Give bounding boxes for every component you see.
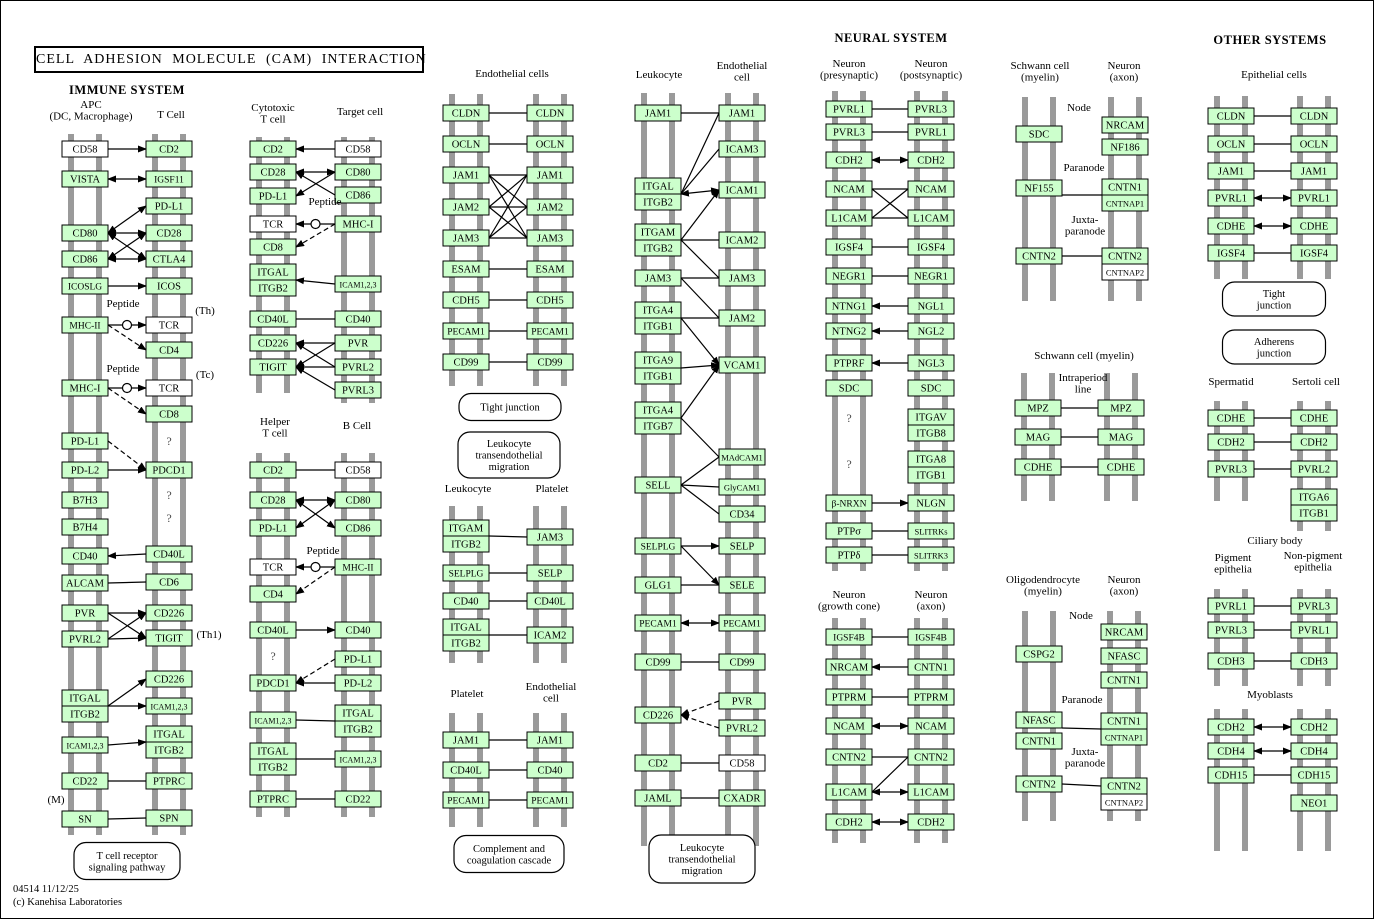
gene-box-PVRL3[interactable]: PVRL3 — [826, 124, 872, 140]
gene-box-CLDN[interactable]: CLDN — [443, 105, 489, 121]
gene-box-CDH4[interactable]: CDH4 — [1291, 743, 1337, 759]
svg-text:ICAM2: ICAM2 — [534, 631, 567, 642]
gene-box-CD22[interactable]: CD22 — [335, 791, 381, 807]
gene-box-MPZ[interactable]: MPZ — [1015, 400, 1061, 416]
gene-box-JAM1[interactable]: JAM1 — [635, 105, 681, 121]
gene-box-PD-L1[interactable]: PD-L1 — [146, 198, 192, 214]
gene-box-JAM1[interactable]: JAM1 — [443, 732, 489, 748]
gene-box-CDH3[interactable]: CDH3 — [1291, 653, 1337, 669]
edge — [681, 701, 719, 715]
gene-box-CDH15[interactable]: CDH15 — [1208, 767, 1254, 783]
gene-box-ITGA4[interactable]: ITGA4 — [635, 402, 681, 418]
gene-box-CNTN2[interactable]: CNTN2 — [1102, 248, 1148, 264]
gene-box-ICAM1,2,3[interactable]: ICAM1,2,3 — [146, 698, 192, 714]
svg-text:CD226: CD226 — [258, 339, 288, 350]
gene-box-CNTN2[interactable]: CNTN2 — [1101, 778, 1147, 794]
gene-box-CD2[interactable]: CD2 — [250, 141, 296, 157]
cell-label: Paranode — [1062, 694, 1103, 706]
gene-box-PVRL1[interactable]: PVRL1 — [1291, 622, 1337, 638]
gene-box-ITGAL[interactable]: ITGAL — [635, 178, 681, 194]
gene-box-ICAM1,2,3[interactable]: ICAM1,2,3 — [335, 276, 381, 292]
gene-box-ITGAM[interactable]: ITGAM — [443, 520, 489, 536]
svg-text:JAML: JAML — [644, 794, 671, 805]
gene-box-PDCD1[interactable]: PDCD1 — [250, 675, 296, 691]
gene-box-CD40[interactable]: CD40 — [335, 311, 381, 327]
gene-box-PD-L1[interactable]: PD-L1 — [250, 520, 296, 536]
gene-box-CD58[interactable]: CD58 — [62, 141, 108, 157]
gene-box-SELP[interactable]: SELP — [719, 538, 765, 554]
gene-box-CDH2[interactable]: CDH2 — [826, 814, 872, 830]
gene-box-NF186[interactable]: NF186 — [1102, 139, 1148, 155]
gene-box-PTPRM[interactable]: PTPRM — [908, 689, 954, 705]
gene-box-MAdCAM1[interactable]: MAdCAM1 — [719, 449, 765, 465]
svg-text:PVRL3: PVRL3 — [342, 386, 374, 397]
gene-box-CD80[interactable]: CD80 — [62, 225, 108, 241]
gene-box-ITGB2[interactable]: ITGB2 — [146, 742, 192, 758]
gene-box-ITGB2[interactable]: ITGB2 — [250, 759, 296, 775]
gene-box-SDC[interactable]: SDC — [826, 380, 872, 396]
gene-box-CD40L[interactable]: CD40L — [146, 546, 192, 562]
gene-box-SLITRK3[interactable]: SLITRK3 — [908, 547, 954, 563]
gene-box-JAM1[interactable]: JAM1 — [527, 732, 573, 748]
gene-box-CNTN1[interactable]: CNTN1 — [1101, 672, 1147, 688]
gene-box-JAM2[interactable]: JAM2 — [719, 310, 765, 326]
gene-box-NEGR1[interactable]: NEGR1 — [908, 268, 954, 284]
gene-box-CD28[interactable]: CD28 — [146, 225, 192, 241]
svg-text:CNTN2: CNTN2 — [832, 753, 866, 764]
gene-box-MAG[interactable]: MAG — [1015, 429, 1061, 445]
gene-box-JAM2[interactable]: JAM2 — [527, 199, 573, 215]
gene-box-NEGR1[interactable]: NEGR1 — [826, 268, 872, 284]
gene-box-PECAM1[interactable]: PECAM1 — [443, 792, 489, 808]
gene-box-CD99[interactable]: CD99 — [719, 654, 765, 670]
gene-box-ITGB2[interactable]: ITGB2 — [635, 194, 681, 210]
gene-box-PTPRM[interactable]: PTPRM — [826, 689, 872, 705]
gene-box-CD58[interactable]: CD58 — [335, 462, 381, 478]
gene-box-CD40L[interactable]: CD40L — [443, 762, 489, 778]
gene-box-PVRL2[interactable]: PVRL2 — [335, 359, 381, 375]
gene-box-SPN[interactable]: SPN — [146, 810, 192, 826]
gene-box-CDHE[interactable]: CDHE — [1208, 218, 1254, 234]
gene-box-PECAM1[interactable]: PECAM1 — [635, 615, 681, 631]
gene-box-CD2[interactable]: CD2 — [250, 462, 296, 478]
gene-box-PVRL3[interactable]: PVRL3 — [1208, 461, 1254, 477]
gene-box-ITGB1[interactable]: ITGB1 — [908, 467, 954, 483]
gene-box-ICOSLG[interactable]: ICOSLG — [62, 278, 108, 294]
gene-box-CD8[interactable]: CD8 — [250, 239, 296, 255]
gene-box-CNTN2[interactable]: CNTN2 — [1016, 776, 1062, 792]
gene-box-JAM3[interactable]: JAM3 — [443, 230, 489, 246]
gene-box-CNTN1[interactable]: CNTN1 — [1102, 179, 1148, 195]
gene-box-NGL3[interactable]: NGL3 — [908, 355, 954, 371]
gene-box-NFASC[interactable]: NFASC — [1016, 712, 1062, 728]
gene-box-CD4[interactable]: CD4 — [146, 342, 192, 358]
gene-box-PDCD1[interactable]: PDCD1 — [146, 462, 192, 478]
gene-box-ITGB1[interactable]: ITGB1 — [635, 368, 681, 384]
gene-box-JAM3[interactable]: JAM3 — [719, 270, 765, 286]
gene-box-PVRL2[interactable]: PVRL2 — [719, 720, 765, 736]
gene-box-ITGAL[interactable]: ITGAL — [62, 690, 108, 706]
gene-box-OCLN[interactable]: OCLN — [527, 136, 573, 152]
cell-label: Schwann cell — [1011, 60, 1070, 72]
gene-box-CXADR[interactable]: CXADR — [719, 790, 765, 806]
gene-box-CD80[interactable]: CD80 — [335, 492, 381, 508]
gene-box-MHC-II[interactable]: MHC-II — [335, 559, 381, 575]
pathway-link-leukocyte-transendothelial-migration[interactable]: Leukocytetransendothelialmigration — [649, 835, 755, 883]
gene-box-SLITRKs[interactable]: SLITRKs — [908, 523, 954, 539]
gene-box-ICAM3[interactable]: ICAM3 — [719, 141, 765, 157]
gene-box-NRCAM[interactable]: NRCAM — [826, 659, 872, 675]
gene-box-JAML[interactable]: JAML — [635, 790, 681, 806]
svg-text:CDH2: CDH2 — [917, 818, 944, 829]
gene-box-CDHE[interactable]: CDHE — [1098, 459, 1144, 475]
gene-box-PECAM1[interactable]: PECAM1 — [527, 792, 573, 808]
gene-box-MAG[interactable]: MAG — [1098, 429, 1144, 445]
gene-box-ITGAL[interactable]: ITGAL — [146, 726, 192, 742]
gene-box-ITGB2[interactable]: ITGB2 — [443, 536, 489, 552]
gene-box-TIGIT[interactable]: TIGIT — [250, 359, 296, 375]
gene-box-SELE[interactable]: SELE — [719, 577, 765, 593]
gene-box-CDH5[interactable]: CDH5 — [443, 292, 489, 308]
gene-box-ITGB2[interactable]: ITGB2 — [335, 721, 381, 737]
gene-box-SDC[interactable]: SDC — [1016, 126, 1062, 142]
gene-box-PECAM1[interactable]: PECAM1 — [443, 323, 489, 339]
gene-box-CDHE[interactable]: CDHE — [1291, 410, 1337, 426]
gene-box-VCAM1[interactable]: VCAM1 — [719, 357, 765, 373]
gene-box-CDHE[interactable]: CDHE — [1015, 459, 1061, 475]
gene-box-SELPLG[interactable]: SELPLG — [635, 538, 681, 554]
gene-box-CNTNAP2[interactable]: CNTNAP2 — [1102, 264, 1148, 280]
gene-box-ICAM2[interactable]: ICAM2 — [527, 627, 573, 643]
gene-box-CD58[interactable]: CD58 — [335, 141, 381, 157]
gene-box-CD99[interactable]: CD99 — [635, 654, 681, 670]
gene-box-NCAM[interactable]: NCAM — [826, 181, 872, 197]
gene-box-IGSF4B[interactable]: IGSF4B — [908, 629, 954, 645]
cell-label: (DC, Macrophage) — [49, 111, 132, 123]
gene-box-ITGB1[interactable]: ITGB1 — [1291, 505, 1337, 521]
gene-box-CD2[interactable]: CD2 — [635, 755, 681, 771]
gene-box-NFASC[interactable]: NFASC — [1101, 648, 1147, 664]
gene-box-ITGAL[interactable]: ITGAL — [250, 264, 296, 280]
gene-box-PVR[interactable]: PVR — [335, 335, 381, 351]
gene-box-PTPRC[interactable]: PTPRC — [250, 791, 296, 807]
gene-box-CDH3[interactable]: CDH3 — [1208, 653, 1254, 669]
gene-box-ITGA4[interactable]: ITGA4 — [635, 302, 681, 318]
gene-box-CD40[interactable]: CD40 — [527, 762, 573, 778]
gene-box-CD40[interactable]: CD40 — [62, 548, 108, 564]
gene-box-IGSF4[interactable]: IGSF4 — [1291, 245, 1337, 261]
gene-box-GlyCAM1[interactable]: GlyCAM1 — [719, 479, 765, 495]
svg-text:ITGAL: ITGAL — [450, 623, 482, 634]
gene-box-TCR[interactable]: TCR — [146, 380, 192, 396]
gene-box-MHC-I[interactable]: MHC-I — [335, 216, 381, 232]
svg-text:CDH3: CDH3 — [1217, 657, 1244, 668]
gene-box-CDH2[interactable]: CDH2 — [1291, 434, 1337, 450]
gene-box-NGL2[interactable]: NGL2 — [908, 323, 954, 339]
cell-label: Helper — [260, 416, 290, 428]
edge — [681, 546, 719, 585]
gene-box-PTPRF[interactable]: PTPRF — [826, 355, 872, 371]
gene-box-PECAM1[interactable]: PECAM1 — [719, 615, 765, 631]
gene-box-CD58[interactable]: CD58 — [719, 755, 765, 771]
gene-box-OCLN[interactable]: OCLN — [1208, 136, 1254, 152]
gene-box-CD40L[interactable]: CD40L — [527, 593, 573, 609]
gene-box-ESAM[interactable]: ESAM — [443, 261, 489, 277]
gene-box-PVRL1[interactable]: PVRL1 — [1291, 190, 1337, 206]
gene-box-PECAM1[interactable]: PECAM1 — [527, 323, 573, 339]
svg-text:ITGAL: ITGAL — [69, 694, 101, 705]
edge — [681, 278, 719, 318]
gene-box-NLGN[interactable]: NLGN — [908, 495, 954, 511]
gene-box-ITGAM[interactable]: ITGAM — [635, 224, 681, 240]
gene-box-JAM1[interactable]: JAM1 — [1208, 163, 1254, 179]
gene-box-PD-L1[interactable]: PD-L1 — [62, 433, 108, 449]
gene-box-L1CAM[interactable]: L1CAM — [908, 210, 954, 226]
gene-box-CD22[interactable]: CD22 — [62, 773, 108, 789]
gene-box-JAM3[interactable]: JAM3 — [527, 529, 573, 545]
gene-box-CDH2[interactable]: CDH2 — [1291, 719, 1337, 735]
gene-box-PVRL3[interactable]: PVRL3 — [1291, 598, 1337, 614]
gene-box-CNTN2[interactable]: CNTN2 — [1016, 248, 1062, 264]
pathway-link-leukocyte-transendothelial-migration[interactable]: Leukocytetransendothelialmigration — [458, 432, 560, 478]
gene-box-TCR[interactable]: TCR — [146, 317, 192, 333]
gene-box-IGSF4[interactable]: IGSF4 — [908, 239, 954, 255]
svg-text:ITGAL: ITGAL — [257, 268, 289, 279]
gene-box-CNTNAP1[interactable]: CNTNAP1 — [1102, 195, 1148, 211]
gene-box-L1CAM[interactable]: L1CAM — [826, 784, 872, 800]
gene-box-CD86[interactable]: CD86 — [335, 187, 381, 203]
gene-box-IGSF4[interactable]: IGSF4 — [826, 239, 872, 255]
pathway-link-complement-and-coagulation-cascade[interactable]: Complement andcoagulation cascade — [454, 836, 564, 873]
gene-box-CD34[interactable]: CD34 — [719, 506, 765, 522]
gene-box-MHC-II[interactable]: MHC-II — [62, 317, 108, 333]
gene-box-JAM1[interactable]: JAM1 — [1291, 163, 1337, 179]
svg-text:TCR: TCR — [159, 321, 179, 332]
edge — [108, 206, 146, 233]
gene-box-PVRL1[interactable]: PVRL1 — [1208, 190, 1254, 206]
gene-box-PVRL3[interactable]: PVRL3 — [1208, 622, 1254, 638]
gene-box-CD8[interactable]: CD8 — [146, 406, 192, 422]
gene-box-MPZ[interactable]: MPZ — [1098, 400, 1144, 416]
pathway-link-adherens-junction[interactable]: Adherensjunction — [1223, 330, 1326, 364]
gene-box-ITGB1[interactable]: ITGB1 — [635, 318, 681, 334]
gene-box-CD99[interactable]: CD99 — [527, 354, 573, 370]
gene-box-CD6[interactable]: CD6 — [146, 574, 192, 590]
gene-box-ICOS[interactable]: ICOS — [146, 278, 192, 294]
peptide-circle-icon — [123, 321, 132, 330]
gene-box-L1CAM[interactable]: L1CAM — [826, 210, 872, 226]
svg-text:TCR: TCR — [159, 384, 179, 395]
gene-box-CD99[interactable]: CD99 — [443, 354, 489, 370]
gene-box-ITGA8[interactable]: ITGA8 — [908, 451, 954, 467]
gene-box-CD2[interactable]: CD2 — [146, 141, 192, 157]
gene-box-IGSF4B[interactable]: IGSF4B — [826, 629, 872, 645]
gene-box-CD40L[interactable]: CD40L — [250, 311, 296, 327]
gene-box-ICAM1,2,3[interactable]: ICAM1,2,3 — [335, 751, 381, 767]
pathway-link-t-cell-receptor-signaling-pathway[interactable]: T cell receptorsignaling pathway — [74, 843, 180, 880]
peptide-circle-icon — [311, 220, 320, 229]
gene-box-CDH2[interactable]: CDH2 — [908, 814, 954, 830]
gene-box-CLDN[interactable]: CLDN — [1291, 108, 1337, 124]
gene-box-PVRL2[interactable]: PVRL2 — [62, 631, 108, 647]
gene-box-CDHE[interactable]: CDHE — [1291, 218, 1337, 234]
gene-box-TCR[interactable]: TCR — [250, 216, 296, 232]
gene-box-CD226[interactable]: CD226 — [146, 605, 192, 621]
cell-label: Schwann cell (myelin) — [1034, 350, 1134, 362]
gene-box-VISTA[interactable]: VISTA — [62, 171, 108, 187]
gene-box-CDH2[interactable]: CDH2 — [1208, 434, 1254, 450]
gene-box-ICAM2[interactable]: ICAM2 — [719, 232, 765, 248]
gene-box-JAM3[interactable]: JAM3 — [527, 230, 573, 246]
gene-box-PD-L2[interactable]: PD-L2 — [62, 462, 108, 478]
gene-box-β-NRXN[interactable]: β-NRXN — [826, 495, 872, 511]
gene-box-JAM1[interactable]: JAM1 — [443, 167, 489, 183]
gene-box-CD28[interactable]: CD28 — [250, 492, 296, 508]
gene-box-PVRL2[interactable]: PVRL2 — [1291, 461, 1337, 477]
gene-box-CDH2[interactable]: CDH2 — [908, 152, 954, 168]
gene-box-CD40[interactable]: CD40 — [443, 593, 489, 609]
gene-box-ITGB7[interactable]: ITGB7 — [635, 418, 681, 434]
gene-box-ITGB2[interactable]: ITGB2 — [250, 280, 296, 296]
gene-box-B7H4[interactable]: B7H4 — [62, 519, 108, 535]
gene-box-PVR[interactable]: PVR — [62, 605, 108, 621]
gene-box-ITGB8[interactable]: ITGB8 — [908, 425, 954, 441]
gene-box-OCLN[interactable]: OCLN — [1291, 136, 1337, 152]
gene-box-ICAM1[interactable]: ICAM1 — [719, 182, 765, 198]
gene-box-NRCAM[interactable]: NRCAM — [1102, 117, 1148, 133]
gene-box-JAM2[interactable]: JAM2 — [443, 199, 489, 215]
gene-box-PVRL1[interactable]: PVRL1 — [1208, 598, 1254, 614]
gene-box-JAM1[interactable]: JAM1 — [719, 105, 765, 121]
gene-box-ITGAL[interactable]: ITGAL — [335, 705, 381, 721]
gene-box-ITGB2[interactable]: ITGB2 — [635, 240, 681, 256]
gene-box-CD226[interactable]: CD226 — [635, 707, 681, 723]
gene-box-CSPG2[interactable]: CSPG2 — [1016, 646, 1062, 662]
gene-box-CDH2[interactable]: CDH2 — [826, 152, 872, 168]
gene-box-PVR[interactable]: PVR — [719, 693, 765, 709]
gene-box-CNTN2[interactable]: CNTN2 — [908, 749, 954, 765]
gene-box-CD86[interactable]: CD86 — [62, 251, 108, 267]
gene-box-CNTN1[interactable]: CNTN1 — [1101, 713, 1147, 729]
gene-box-MHC-I[interactable]: MHC-I — [62, 380, 108, 396]
gene-box-SELP[interactable]: SELP — [527, 565, 573, 581]
gene-box-CDH2[interactable]: CDH2 — [1208, 719, 1254, 735]
gene-box-ITGAL[interactable]: ITGAL — [443, 619, 489, 635]
gene-box-CDHE[interactable]: CDHE — [1208, 410, 1254, 426]
gene-box-CD80[interactable]: CD80 — [335, 164, 381, 180]
gene-box-PD-L1[interactable]: PD-L1 — [335, 651, 381, 667]
gene-box-PD-L2[interactable]: PD-L2 — [335, 675, 381, 691]
gene-box-CLDN[interactable]: CLDN — [527, 105, 573, 121]
gene-box-ITGA9[interactable]: ITGA9 — [635, 352, 681, 368]
gene-box-ITGAL[interactable]: ITGAL — [250, 743, 296, 759]
gene-box-ITGAV[interactable]: ITGAV — [908, 409, 954, 425]
edge — [1062, 784, 1101, 786]
gene-box-ESAM[interactable]: ESAM — [527, 261, 573, 277]
gene-box-IGSF11[interactable]: IGSF11 — [146, 171, 192, 187]
gene-box-NF155[interactable]: NF155 — [1016, 180, 1062, 196]
gene-box-CD226[interactable]: CD226 — [146, 671, 192, 687]
gene-box-CD40[interactable]: CD40 — [335, 622, 381, 638]
svg-text:CD99: CD99 — [453, 358, 478, 369]
gene-box-CD40L[interactable]: CD40L — [250, 622, 296, 638]
svg-text:PVRL1: PVRL1 — [1215, 602, 1247, 613]
svg-text:ITGB7: ITGB7 — [643, 422, 673, 433]
gene-box-CDH5[interactable]: CDH5 — [527, 292, 573, 308]
gene-box-GLG1[interactable]: GLG1 — [635, 577, 681, 593]
gene-box-ITGB2[interactable]: ITGB2 — [62, 706, 108, 722]
cell-label: epithelia — [1214, 564, 1252, 576]
gene-box-CD28[interactable]: CD28 — [250, 164, 296, 180]
gene-box-B7H3[interactable]: B7H3 — [62, 492, 108, 508]
gene-box-CD4[interactable]: CD4 — [250, 586, 296, 602]
svg-text:PTPRC: PTPRC — [153, 777, 185, 788]
gene-box-NTNG2[interactable]: NTNG2 — [826, 323, 872, 339]
gene-box-JAM1[interactable]: JAM1 — [527, 167, 573, 183]
gene-box-SDC[interactable]: SDC — [908, 380, 954, 396]
pathway-link-tight-junction[interactable]: Tight junction — [459, 394, 561, 421]
gene-box-ITGA6[interactable]: ITGA6 — [1291, 489, 1337, 505]
gene-box-CNTN1[interactable]: CNTN1 — [908, 659, 954, 675]
gene-box-NCAM[interactable]: NCAM — [908, 718, 954, 734]
gene-box-CTLA4[interactable]: CTLA4 — [146, 251, 192, 267]
gene-box-PTPRC[interactable]: PTPRC — [146, 773, 192, 789]
gene-box-PD-L1[interactable]: PD-L1 — [250, 188, 296, 204]
svg-text:ALCAM: ALCAM — [66, 579, 105, 590]
pathway-link-tight-junction[interactable]: Tightjunction — [1223, 282, 1326, 316]
svg-text:PVRL1: PVRL1 — [1298, 194, 1330, 205]
gene-box-CLDN[interactable]: CLDN — [1208, 108, 1254, 124]
gene-box-CD226[interactable]: CD226 — [250, 335, 296, 351]
gene-box-PTPδ[interactable]: PTPδ — [826, 547, 872, 563]
gene-box-SN[interactable]: SN — [62, 811, 108, 827]
gene-box-NGL1[interactable]: NGL1 — [908, 298, 954, 314]
gene-box-CNTNAP1[interactable]: CNTNAP1 — [1101, 729, 1147, 745]
gene-box-PVRL3[interactable]: PVRL3 — [335, 382, 381, 398]
gene-box-ICAM1,2,3[interactable]: ICAM1,2,3 — [62, 737, 108, 753]
gene-box-NCAM[interactable]: NCAM — [826, 718, 872, 734]
gene-box-TIGIT[interactable]: TIGIT — [146, 630, 192, 646]
gene-box-NCAM[interactable]: NCAM — [908, 181, 954, 197]
gene-box-SELL[interactable]: SELL — [635, 477, 681, 493]
gene-box-CNTNAP2[interactable]: CNTNAP2 — [1101, 794, 1147, 810]
gene-box-PVRL3[interactable]: PVRL3 — [908, 101, 954, 117]
gene-box-NTNG1[interactable]: NTNG1 — [826, 298, 872, 314]
gene-box-SELPLG[interactable]: SELPLG — [443, 565, 489, 581]
gene-box-NEO1[interactable]: NEO1 — [1291, 795, 1337, 811]
gene-box-OCLN[interactable]: OCLN — [443, 136, 489, 152]
gene-box-CDH15[interactable]: CDH15 — [1291, 767, 1337, 783]
gene-box-ALCAM[interactable]: ALCAM — [62, 575, 108, 591]
gene-box-ITGB2[interactable]: ITGB2 — [443, 635, 489, 651]
gene-box-NRCAM[interactable]: NRCAM — [1101, 624, 1147, 640]
gene-box-TCR[interactable]: TCR — [250, 559, 296, 575]
gene-box-PTPσ[interactable]: PTPσ — [826, 523, 872, 539]
gene-box-CDH4[interactable]: CDH4 — [1208, 743, 1254, 759]
cell-label: Juxta- — [1072, 214, 1099, 226]
gene-box-PVRL1[interactable]: PVRL1 — [826, 101, 872, 117]
gene-box-CNTN1[interactable]: CNTN1 — [1016, 733, 1062, 749]
svg-text:JAM3: JAM3 — [453, 234, 479, 245]
gene-box-CD86[interactable]: CD86 — [335, 520, 381, 536]
gene-box-IGSF4[interactable]: IGSF4 — [1208, 245, 1254, 261]
gene-box-PVRL1[interactable]: PVRL1 — [908, 124, 954, 140]
gene-box-ICAM1,2,3[interactable]: ICAM1,2,3 — [250, 712, 296, 728]
cell-label: cell — [734, 72, 750, 84]
gene-box-L1CAM[interactable]: L1CAM — [908, 784, 954, 800]
gene-box-CNTN2[interactable]: CNTN2 — [826, 749, 872, 765]
gene-box-JAM3[interactable]: JAM3 — [635, 270, 681, 286]
